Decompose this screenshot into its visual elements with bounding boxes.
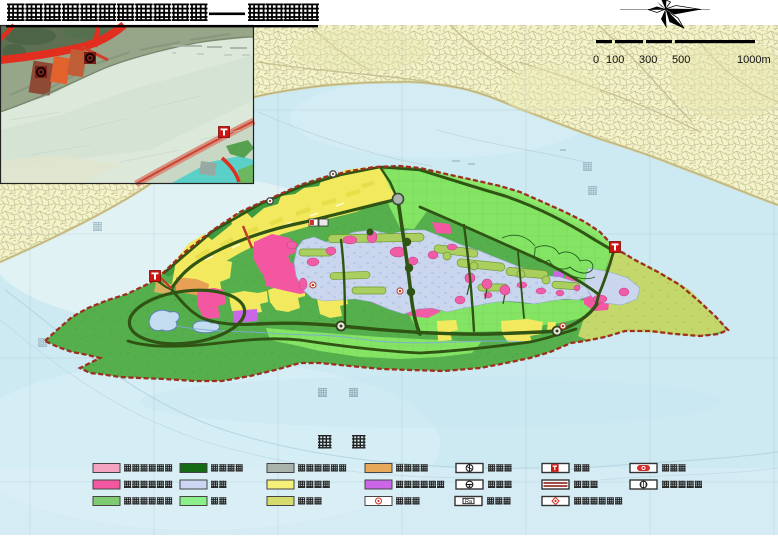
svg-text:500: 500 [672, 54, 690, 66]
svg-text:0: 0 [593, 54, 599, 66]
svg-text:100: 100 [606, 54, 624, 66]
svg-text:300: 300 [639, 54, 657, 66]
svg-text:Ra: Ra [465, 499, 473, 505]
svg-text:1000m: 1000m [737, 54, 771, 66]
